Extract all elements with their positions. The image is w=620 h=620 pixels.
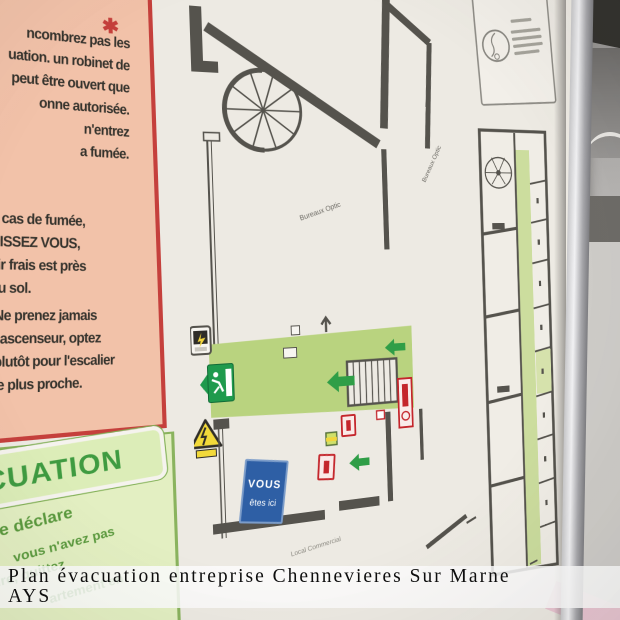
main-floor-plan: Bureaux Optic Bureaux Optic xyxy=(177,0,494,620)
wall-mid-vertical xyxy=(384,149,387,249)
svg-text:êtes ici: êtes ici xyxy=(249,497,277,508)
door-swing-arrow xyxy=(321,317,331,332)
pink-instructions-panel: ✱ ncombrez pas les uation. un robinet de… xyxy=(0,0,167,448)
you-are-here-marker: VOUS êtes ici xyxy=(240,460,288,523)
door-symbol xyxy=(203,132,219,141)
wall-bottom-right-diagonal xyxy=(426,516,467,548)
wall-thin-left xyxy=(207,141,214,347)
logo-box xyxy=(471,0,557,106)
wall-top-left-stub xyxy=(189,5,218,72)
wall-bottom-vertical xyxy=(385,412,393,502)
text-line: du sol. xyxy=(0,276,129,300)
pink-text-block-1: ncombrez pas les uation. un robinet de p… xyxy=(0,17,130,165)
text-line: l'ascenseur, optez xyxy=(0,326,133,350)
bottom-room-label: Local Commercial xyxy=(290,534,342,558)
room-label: Bureaux Optic xyxy=(299,200,342,222)
caption-bar: Plan évacuation entreprise Chennevieres … xyxy=(0,566,620,608)
room-label: Bureaux Optic xyxy=(420,144,442,184)
pink-text-block-2: n cas de fumée, AISSEZ VOUS, air frais e… xyxy=(0,206,130,300)
logo-graphic xyxy=(473,0,555,104)
photo-of-evacuation-plan: ✱ ncombrez pas les uation. un robinet de… xyxy=(0,0,620,620)
small-green-sign-icon xyxy=(326,432,337,446)
small-red-sign-icon xyxy=(377,410,385,419)
svg-text:VOUS: VOUS xyxy=(247,479,281,491)
tiny-label-mark xyxy=(466,517,476,523)
overview-mini-plan xyxy=(477,127,561,578)
caption-subtitle: AYS xyxy=(8,586,51,608)
logo-seal xyxy=(481,30,510,61)
text-line: plutôt pour l'escalier xyxy=(0,348,133,373)
evacuation-sign-board: ✱ ncombrez pas les uation. un robinet de… xyxy=(0,0,599,620)
wall-top-right-vertical xyxy=(379,0,392,129)
exit-sign-icon xyxy=(199,363,234,403)
spiral-staircase-icon xyxy=(485,157,512,188)
text-line: Ne prenez jamais xyxy=(0,304,133,327)
corridor-small-label xyxy=(283,347,296,358)
text-line: air frais est près xyxy=(0,253,130,278)
wall-corner xyxy=(213,418,229,430)
pink-text-block-3: Ne prenez jamais l'ascenseur, optez plut… xyxy=(0,304,133,397)
text-line: le plus proche. xyxy=(0,370,133,396)
fire-extinguisher-icon xyxy=(342,415,356,436)
text-line: AISSEZ VOUS, xyxy=(0,229,130,256)
wall-bottom-mid xyxy=(339,496,380,511)
alarm-call-point-icon xyxy=(190,326,211,355)
logo-text-lines xyxy=(509,17,544,55)
wall-top-right-diagonal xyxy=(388,6,429,43)
wall-right-upper xyxy=(424,43,432,149)
caption-title: Plan évacuation entreprise Chennevieres … xyxy=(8,566,510,588)
door-gap xyxy=(291,326,300,335)
evacuation-arrow-icon xyxy=(349,453,370,472)
hose-reel-icon xyxy=(398,378,413,428)
fire-extinguisher-icon xyxy=(318,455,335,480)
